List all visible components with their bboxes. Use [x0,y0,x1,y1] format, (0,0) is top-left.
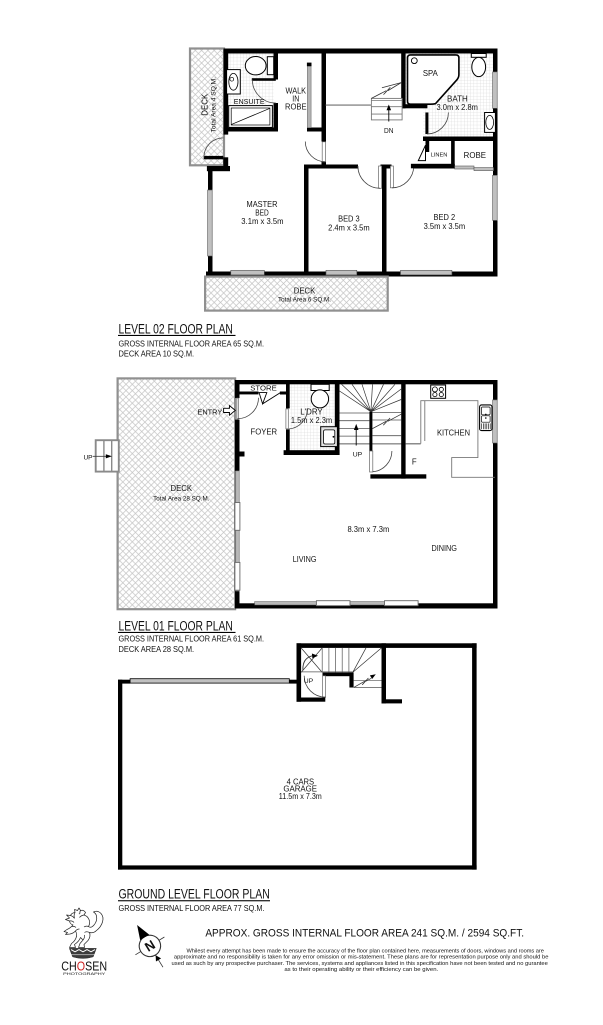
svg-text:Total Area 4 SQ.M.: Total Area 4 SQ.M. [211,77,218,133]
svg-text:3.5m x 3.5m: 3.5m x 3.5m [424,221,466,231]
svg-text:UP: UP [304,678,314,685]
svg-text:GROUND LEVEL FLOOR PLAN: GROUND LEVEL FLOOR PLAN [119,887,270,902]
svg-text:Total Area 28 SQ.M.: Total Area 28 SQ.M. [153,496,209,503]
svg-text:FOYER: FOYER [251,427,278,437]
svg-text:GROSS INTERNAL FLOOR AREA 65 S: GROSS INTERNAL FLOOR AREA 65 SQ.M. [119,340,265,349]
svg-text:LEVEL 01 FLOOR PLAN: LEVEL 01 FLOOR PLAN [119,618,233,633]
svg-text:APPROX. GROSS INTERNAL FLOOR A: APPROX. GROSS INTERNAL FLOOR AREA 241 SQ… [205,928,524,940]
svg-text:UP: UP [353,452,363,459]
svg-text:DECK AREA 28 SQ.M.: DECK AREA 28 SQ.M. [119,645,195,654]
svg-text:UP: UP [83,455,92,462]
svg-text:F: F [412,458,417,467]
svg-text:DECK AREA 10 SQ.M.: DECK AREA 10 SQ.M. [119,350,195,359]
svg-text:ENSUITE: ENSUITE [234,97,265,106]
svg-text:approximate and no responsibil: approximate and no responsibility is tak… [174,955,549,961]
svg-text:3.0m x 2.8m: 3.0m x 2.8m [437,102,478,112]
svg-text:Whilest every attempt has been: Whilest every attempt has been made to e… [186,948,544,954]
svg-text:DINING: DINING [431,543,457,553]
svg-text:ENTRY: ENTRY [197,407,222,416]
svg-text:GROSS INTERNAL FLOOR AREA 61 S: GROSS INTERNAL FLOOR AREA 61 SQ.M. [119,635,265,644]
svg-text:3.1m x 3.5m: 3.1m x 3.5m [241,216,283,226]
svg-text:ROBE: ROBE [464,150,487,160]
svg-text:DN: DN [384,128,394,135]
svg-text:11.5m x 7.3m: 11.5m x 7.3m [279,792,322,801]
svg-text:GROSS INTERNAL FLOOR AREA 77 S: GROSS INTERNAL FLOOR AREA 77 SQ.M. [119,904,265,913]
svg-text:ROBE: ROBE [285,101,307,111]
svg-text:LIVING: LIVING [293,554,317,564]
svg-text:SPA: SPA [423,68,438,78]
svg-text:used as such by any prospectiv: used as such by any prospective purchase… [172,961,548,967]
svg-text:LEVEL 02 FLOOR PLAN: LEVEL 02 FLOOR PLAN [119,322,233,337]
svg-text:8.3m x 7.3m: 8.3m x 7.3m [347,524,389,534]
svg-text:1.5m x 2.3m: 1.5m x 2.3m [291,416,333,425]
svg-text:DECK: DECK [171,483,193,493]
svg-text:as to their operating ability: as to their operating ability or their e… [284,967,438,973]
svg-text:STORE: STORE [250,383,277,392]
svg-text:DECK: DECK [199,93,209,115]
svg-text:KITCHEN: KITCHEN [437,428,470,438]
svg-text:2.4m x 3.5m: 2.4m x 3.5m [328,222,370,232]
svg-text:DECK: DECK [294,286,316,296]
svg-text:Total Area 6 SQ.M.: Total Area 6 SQ.M. [278,297,331,304]
svg-text:PHOTOGRAPHY: PHOTOGRAPHY [63,971,106,976]
svg-text:LINEN: LINEN [431,152,448,158]
